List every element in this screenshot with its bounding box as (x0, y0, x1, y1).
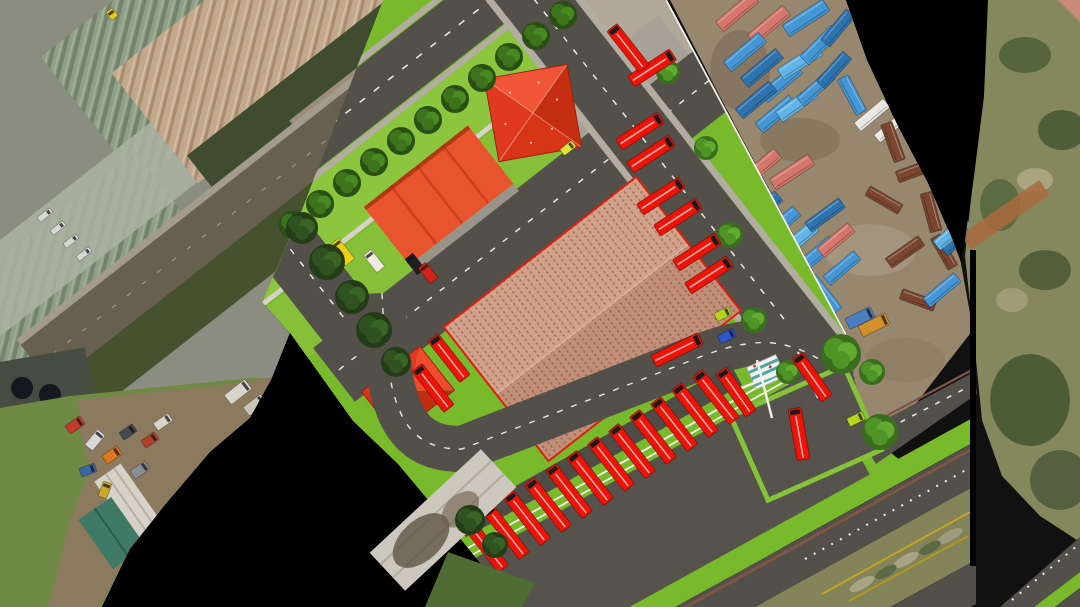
tree (309, 244, 345, 280)
blur-blob (999, 37, 1051, 73)
blur-blob (1019, 250, 1071, 290)
tree (455, 505, 485, 535)
tree (360, 148, 388, 176)
tree (549, 1, 577, 29)
tree (821, 334, 861, 374)
tree (387, 127, 415, 155)
blur-blob (996, 288, 1028, 312)
tree (286, 212, 318, 244)
mask-seam-line (970, 250, 976, 566)
tree (482, 532, 508, 558)
tree (335, 280, 369, 314)
tree (381, 347, 411, 377)
tree (414, 106, 442, 134)
tree (522, 22, 550, 50)
tree (333, 169, 361, 197)
tree (306, 190, 334, 218)
blur-blob (990, 354, 1070, 446)
tree (356, 312, 392, 348)
aerial-site-plan-image (0, 0, 1080, 607)
tree (441, 85, 469, 113)
tree (859, 359, 885, 385)
tree (741, 307, 767, 333)
tree (495, 43, 523, 71)
corner-roads (1000, 537, 1080, 607)
screenshot-stage (0, 0, 1080, 607)
tree (468, 64, 496, 92)
tree (862, 414, 898, 450)
tree (694, 136, 718, 160)
